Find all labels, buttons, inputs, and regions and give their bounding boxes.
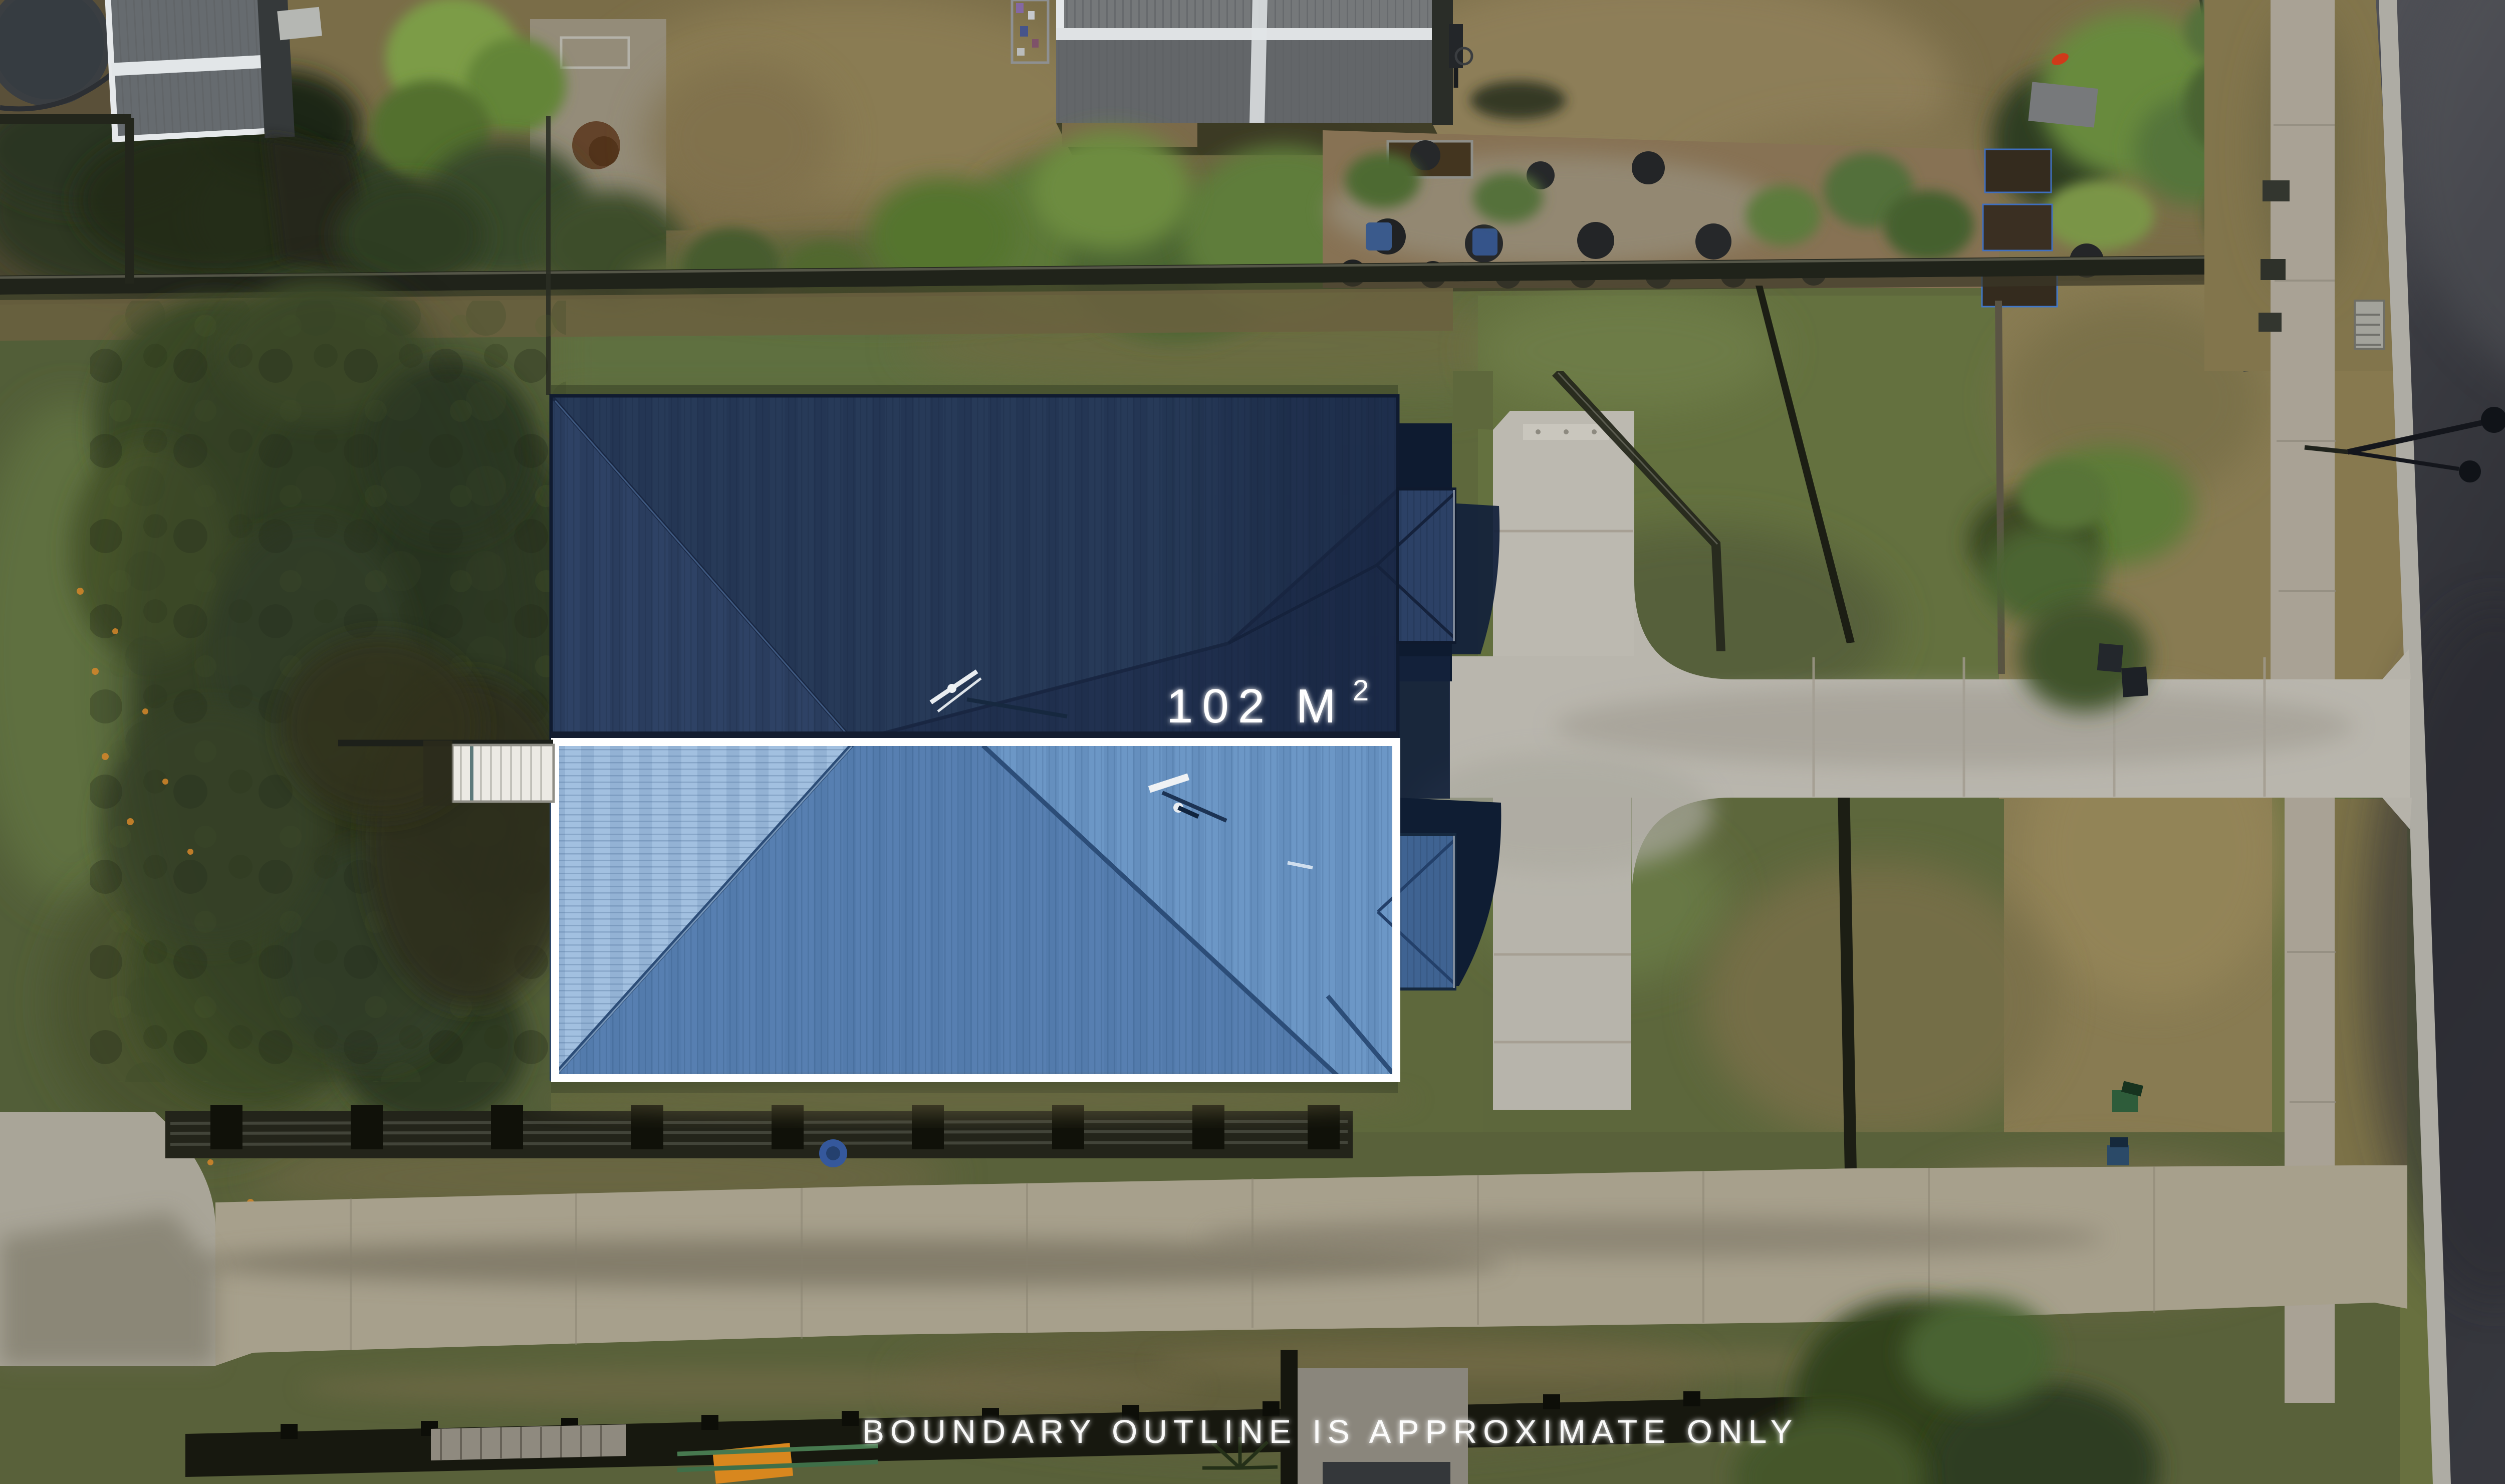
svg-text:BOUNDARY OUTLINE IS APPROXIMAT: BOUNDARY OUTLINE IS APPROXIMATE ONLY [862,1413,1798,1450]
svg-text:102 M: 102 M [1166,679,1345,733]
svg-text:2: 2 [1353,674,1369,707]
